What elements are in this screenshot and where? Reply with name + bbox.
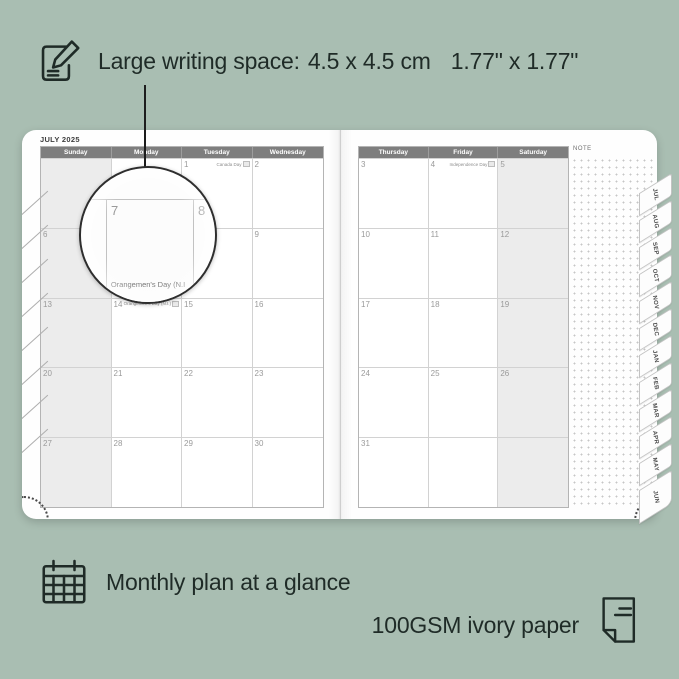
- magnifier-circle: 7 8 Orangemen's Day (N.I: [79, 166, 217, 304]
- paper-callout-text: 100GSM ivory paper: [372, 612, 579, 639]
- calendar-cell: 24: [359, 367, 429, 437]
- date-number: 22: [184, 369, 193, 379]
- calendar-cell: 5: [498, 158, 568, 228]
- date-number: 9: [255, 230, 259, 240]
- calendar-cell: 29: [182, 437, 253, 507]
- day-header: Wednesday: [253, 147, 324, 158]
- date-number: 28: [114, 439, 123, 449]
- flag-icon: [488, 161, 495, 167]
- calendar-cell: 11: [429, 228, 499, 298]
- date-number: 25: [431, 369, 440, 379]
- calendar-cell: 25: [429, 367, 499, 437]
- date-number: 2: [255, 160, 259, 170]
- date-number: 6: [43, 230, 47, 240]
- day-header: Tuesday: [182, 147, 253, 158]
- monthly-callout: Monthly plan at a glance: [40, 556, 351, 608]
- month-title: JULY 2025: [40, 135, 80, 144]
- calendar-cell: 17: [359, 298, 429, 368]
- calendar-cell: 21: [112, 367, 183, 437]
- calendar-cell: 13: [41, 298, 112, 368]
- calendar-cell: 3: [359, 158, 429, 228]
- note-dot-grid: [571, 157, 655, 505]
- date-number: 12: [500, 230, 509, 240]
- writing-space-label: Large writing space:: [98, 48, 300, 74]
- date-number: 19: [500, 300, 509, 310]
- calendar-cell: 15: [182, 298, 253, 368]
- day-header: Thursday: [359, 147, 429, 158]
- calendar-cell: 30: [253, 437, 324, 507]
- date-number: 4: [431, 160, 435, 170]
- date-number: 13: [43, 300, 52, 310]
- calendar-cell: 23: [253, 367, 324, 437]
- day-header: Saturday: [498, 147, 568, 158]
- date-number: 3: [361, 160, 365, 170]
- date-number: 29: [184, 439, 193, 449]
- date-number: 23: [255, 369, 264, 379]
- calendar-cell: [498, 437, 568, 507]
- date-number: 16: [255, 300, 264, 310]
- calendar-cell: 19: [498, 298, 568, 368]
- date-number: 10: [361, 230, 370, 240]
- paper-sheet-icon: [595, 592, 641, 648]
- flag-icon: [243, 161, 250, 167]
- calendar-icon: [40, 556, 88, 608]
- calendar-cell: 4Independence Day: [429, 158, 499, 228]
- date-number: 5: [500, 160, 504, 170]
- date-number: 18: [431, 300, 440, 310]
- calendar-cell: 22: [182, 367, 253, 437]
- magnified-holiday-label: Orangemen's Day (N.I: [81, 280, 215, 289]
- calendar-cell: 27: [41, 437, 112, 507]
- writing-space-imperial: 1.77" x 1.77": [451, 48, 579, 74]
- holiday-label: Independence Day: [450, 162, 488, 167]
- day-header: Sunday: [41, 147, 112, 158]
- book-spine-line: [340, 130, 341, 519]
- magnified-next-date: 8: [198, 203, 205, 218]
- holiday-label: Canada Day: [216, 162, 241, 167]
- date-number: 31: [361, 439, 370, 449]
- monthly-callout-text: Monthly plan at a glance: [106, 569, 351, 596]
- day-header: Monday: [112, 147, 183, 158]
- date-number: 17: [361, 300, 370, 310]
- date-number: 21: [114, 369, 123, 379]
- note-label: NOTE: [573, 146, 592, 152]
- date-number: 30: [255, 439, 264, 449]
- date-number: 26: [500, 369, 509, 379]
- date-number: 20: [43, 369, 52, 379]
- writing-space-metric: 4.5 x 4.5 cm: [308, 48, 431, 74]
- date-number: 1: [184, 160, 188, 170]
- product-image: Large writing space:4.5 x 4.5 cm1.77" x …: [0, 0, 679, 679]
- writing-note-icon: [38, 36, 84, 86]
- calendar-cell: 31: [359, 437, 429, 507]
- calendar-cell: 14Orangemen's Day (N.I.): [112, 298, 183, 368]
- paper-callout: 100GSM ivory paper: [372, 592, 641, 648]
- calendar-cell: 18: [429, 298, 499, 368]
- top-callout: Large writing space:4.5 x 4.5 cm1.77" x …: [38, 36, 578, 86]
- callout-pointer-line: [144, 85, 146, 168]
- calendar-cell: 16: [253, 298, 324, 368]
- top-callout-text: Large writing space:4.5 x 4.5 cm1.77" x …: [98, 48, 578, 75]
- magnified-date: 7: [111, 203, 118, 218]
- calendar-cell: 9: [253, 228, 324, 298]
- calendar-cell: 10: [359, 228, 429, 298]
- calendar-cell: 20: [41, 367, 112, 437]
- calendar-cell: 2: [253, 158, 324, 228]
- calendar-cell: 12: [498, 228, 568, 298]
- date-number: 11: [431, 230, 439, 240]
- calendar-cell: 26: [498, 367, 568, 437]
- date-number: 27: [43, 439, 52, 449]
- calendar-cell: 28: [112, 437, 183, 507]
- date-number: 24: [361, 369, 370, 379]
- right-page-grid: ThursdayFridaySaturday34Independence Day…: [358, 146, 569, 508]
- day-header: Friday: [429, 147, 499, 158]
- calendar-cell: [429, 437, 499, 507]
